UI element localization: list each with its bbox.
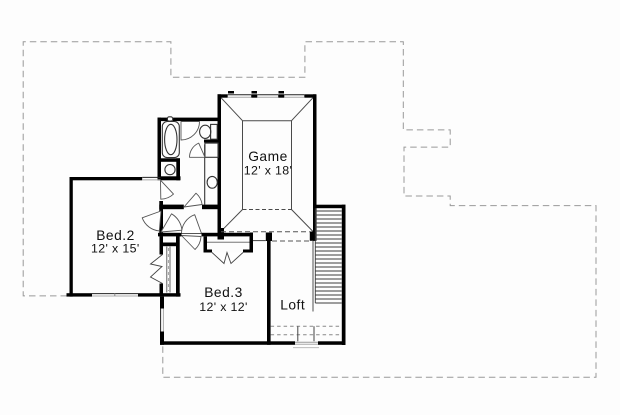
svg-text:12' x 18': 12' x 18': [244, 164, 293, 178]
svg-text:12' x 15': 12' x 15': [91, 242, 140, 256]
svg-text:12' x 12': 12' x 12': [199, 300, 248, 314]
svg-text:Bed.3: Bed.3: [204, 285, 243, 300]
svg-text:Loft: Loft: [280, 298, 305, 313]
svg-text:Game: Game: [248, 149, 288, 164]
